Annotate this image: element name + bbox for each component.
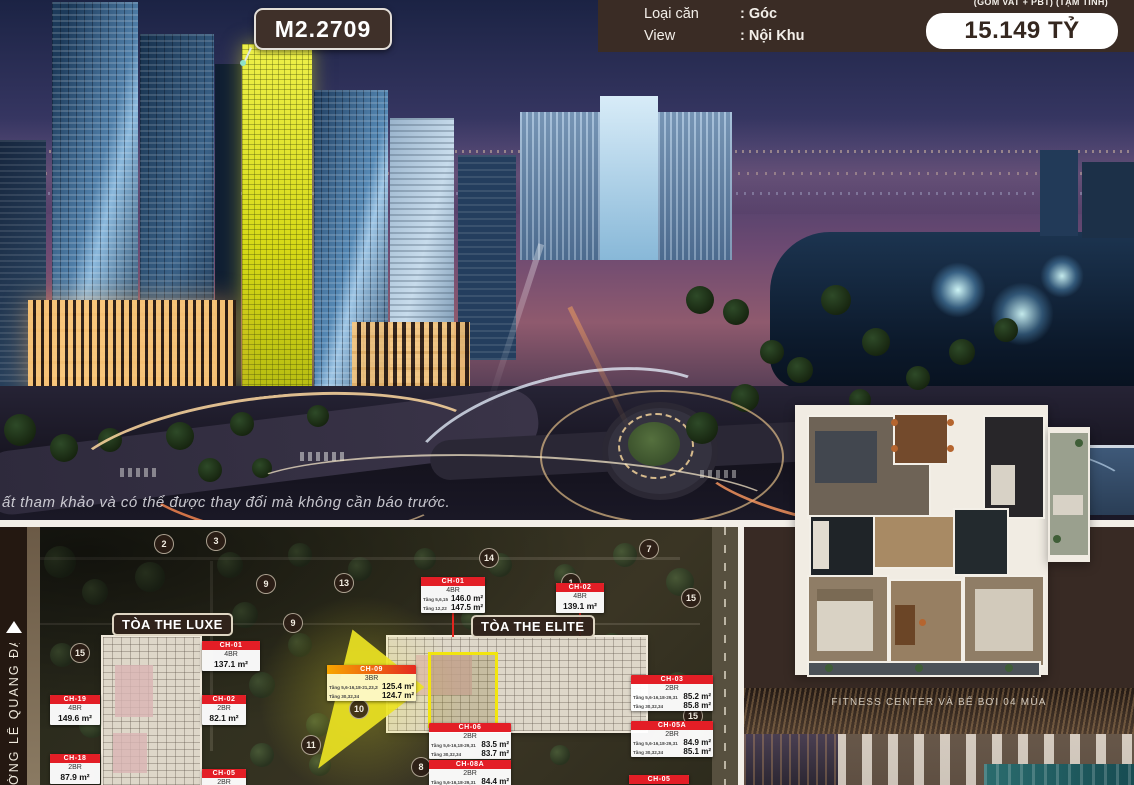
headboard [817, 589, 873, 601]
dining-table [895, 415, 947, 463]
unit-card-bedrooms: 4BR [556, 592, 604, 601]
podium-mall [352, 322, 470, 394]
tree [686, 286, 714, 314]
card-connector [452, 613, 454, 637]
unit-card-ch-02: CH-024BR139.1 m² [556, 583, 604, 613]
sofa [815, 431, 877, 483]
floorplate-room-tint [115, 665, 153, 717]
map-marker-7: 7 [639, 539, 659, 559]
unit-card-area: 139.1 m² [556, 601, 604, 613]
map-marker-13: 13 [334, 573, 354, 593]
plant [915, 664, 923, 672]
unit-card-floor-row: Tầng 5,6-16,18-29,31,33,3584.4 m² [429, 778, 511, 785]
map-marker-2: 2 [154, 534, 174, 554]
bathroom-right [955, 510, 1007, 574]
badge-pointer-dot [240, 60, 246, 66]
tower-label-the-luxe: TÒA THE LUXE [112, 613, 233, 636]
unit-card-ch-05: CH-05 [629, 775, 689, 784]
fitness-city-window [744, 734, 838, 785]
floor-plan-render [795, 405, 1090, 675]
plant [1075, 439, 1083, 447]
unit-card-ch-01: CH-014BRTầng 5,6,15146.0 m²Tầng 12,22147… [421, 577, 485, 613]
map-marker-8: 8 [411, 757, 431, 777]
dining-chair [891, 419, 898, 426]
loggia-counter [1053, 495, 1083, 515]
map-marker-14: 14 [479, 548, 499, 568]
north-arrow-icon [6, 621, 22, 633]
map-marker-3: 3 [206, 531, 226, 551]
chair [919, 619, 926, 626]
unit-card-ch-01: CH-014BR137.1 m² [202, 641, 260, 671]
city-tower [1040, 150, 1078, 236]
unit-type-label: Loại căn [644, 6, 740, 22]
fitness-center-photo: FITNESS CENTER VÀ BỂ BƠI 04 MÙA [744, 688, 1134, 785]
fitness-caption: FITNESS CENTER VÀ BỂ BƠI 04 MÙA [744, 697, 1134, 708]
unit-card-ch-09: CH-093BRTầng 5,6-16,18-21,23,25125.4 m²T… [327, 665, 416, 701]
unit-card-area: 149.6 m² [50, 713, 100, 725]
unit-card-bedrooms: 4BR [202, 650, 260, 659]
unit-card-header: CH-02 [202, 695, 246, 704]
site-map: 231591314971511011815 CH-014BRTầng 5,6,1… [0, 527, 738, 785]
road-right [712, 527, 738, 785]
unit-card-area: 82.1 m² [202, 713, 246, 725]
unit-card-ch-03: CH-032BRTầng 5,6-16,18-29,31,33,3585.2 m… [631, 675, 713, 711]
fitness-ceiling [744, 688, 1134, 734]
city-tower [1082, 162, 1134, 238]
unit-card-header: CH-09 [327, 665, 416, 674]
floorplate-the-luxe [103, 637, 200, 785]
unit-card-ch-02: CH-022BR82.1 m² [202, 695, 246, 725]
dining-chair [891, 445, 898, 452]
unit-card-header: CH-08A [429, 760, 511, 769]
unit-card-ch-05a: CH-05A2BRTầng 5,6-16,18-29,31,33,3584.9 … [631, 721, 713, 757]
price-note: (GỒM VAT + PBT) (TẠM TÍNH) [974, 0, 1108, 7]
fountain-glow [930, 262, 986, 318]
unit-card-header: CH-02 [556, 583, 604, 592]
unit-info-bar: Loại căn: Góc View: Nội Khu (GỒM VAT + P… [598, 0, 1134, 52]
tree [787, 357, 813, 383]
unit-card-floor-row: Tầng 30,32,3485.8 m² [631, 702, 713, 711]
unit-card-ch-05: CH-052BR [202, 769, 246, 785]
price-pill: 15.149 TỶ [926, 13, 1118, 49]
unit-code-badge: M2.2709 [254, 8, 392, 50]
unit-card-header: CH-05 [629, 775, 689, 784]
unit-card-header: CH-05 [202, 769, 246, 778]
tree [50, 434, 78, 462]
road-left [27, 527, 40, 785]
street-name-label: ỜNG LÊ QUANG ĐẠO [7, 643, 21, 785]
unit-card-header: CH-18 [50, 754, 100, 763]
unit-card-header: CH-01 [202, 641, 260, 650]
unit-card-bedrooms: 4BR [50, 704, 100, 713]
info-row-unit-type: Loại căn: Góc [644, 6, 777, 26]
unit-code-label: M2.2709 [275, 16, 372, 43]
highlighted-tower [242, 44, 312, 386]
map-marker-11: 11 [301, 735, 321, 755]
tree [760, 340, 784, 364]
listing-poster: ất tham khảo và có thể được thay đổi mà … [0, 0, 1134, 785]
dining-chair [947, 419, 954, 426]
price-value: 15.149 TỶ [964, 17, 1079, 45]
highlighted-unit-outline [428, 652, 498, 728]
unit-card-header: CH-05A [631, 721, 713, 730]
map-marker-9: 9 [283, 613, 303, 633]
fountain-glow [1040, 254, 1084, 298]
plant [1005, 664, 1013, 672]
unit-card-ch-19: CH-194BR149.6 m² [50, 695, 100, 725]
kitchen-island [991, 465, 1015, 505]
unit-card-header: CH-01 [421, 577, 485, 586]
tree [723, 299, 749, 325]
map-marker-15: 15 [70, 643, 90, 663]
unit-card-bedrooms: 2BR [202, 704, 246, 713]
glass-facade [600, 96, 658, 260]
unit-card-bedrooms: 2BR [50, 763, 100, 772]
fitness-pool [984, 764, 1134, 785]
tree [906, 366, 930, 390]
map-marker-15: 15 [681, 588, 701, 608]
info-row-view: View: Nội Khu [644, 28, 804, 48]
tree [4, 414, 36, 446]
tower-label-the-elite: TÒA THE ELITE [471, 615, 595, 638]
unit-card-area: 137.1 m² [202, 659, 260, 671]
unit-card-floor-row: Tầng 30,32,34124.7 m² [327, 692, 416, 701]
view-label: View [644, 28, 740, 44]
unit-card-floor-row: Tầng 30,32,3483.7 m² [429, 750, 511, 759]
bed [975, 589, 1033, 651]
tree [821, 285, 851, 315]
plant [1053, 535, 1061, 543]
unit-card-header: CH-19 [50, 695, 100, 704]
unit-card-floor-row: Tầng 12,22147.5 m² [421, 604, 485, 613]
unit-card-header: CH-03 [631, 675, 713, 684]
tree [862, 328, 890, 356]
plant [825, 664, 833, 672]
unit-card-bedrooms: 2BR [202, 778, 246, 785]
desk [895, 605, 915, 645]
watermark-text: ất tham khảo và có thể được thay đổi mà … [2, 494, 642, 511]
unit-card-ch-06: CH-062BRTầng 5,6-16,18-29,31,33,3583.5 m… [429, 723, 511, 759]
unit-card-header: CH-06 [429, 723, 511, 732]
tree [949, 339, 975, 365]
view-value: : Nội Khu [740, 28, 804, 44]
bathtub [813, 521, 829, 569]
map-marker-10: 10 [349, 699, 369, 719]
unit-card-floor-row: Tầng 30,32,3485.1 m² [631, 748, 713, 757]
unit-card-ch-18: CH-182BR87.9 m² [50, 754, 100, 784]
unit-card-ch-08a: CH-08A2BRTầng 5,6-16,18-29,31,33,3584.4 … [429, 760, 511, 785]
map-marker-9: 9 [256, 574, 276, 594]
street-strip: ỜNG LÊ QUANG ĐẠO [0, 527, 27, 785]
dining-chair [947, 445, 954, 452]
podium-mall [28, 300, 236, 392]
unit-type-value: : Góc [740, 6, 777, 22]
floorplate-room-tint [113, 733, 147, 773]
unit-card-area: 87.9 m² [50, 772, 100, 784]
tree [994, 318, 1018, 342]
